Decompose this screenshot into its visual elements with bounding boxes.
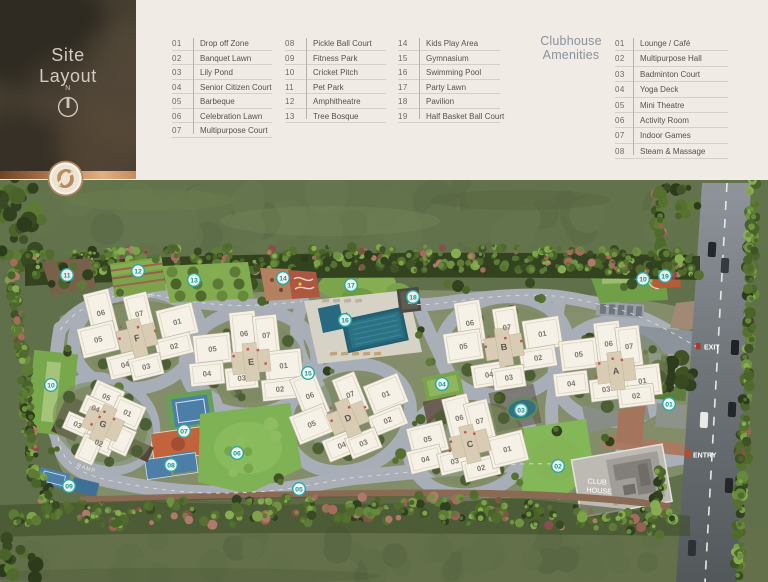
svg-text:04: 04 xyxy=(438,381,446,388)
svg-text:17: 17 xyxy=(347,282,355,289)
svg-text:02: 02 xyxy=(533,353,543,363)
svg-text:E: E xyxy=(247,357,254,368)
svg-text:06: 06 xyxy=(233,450,241,457)
svg-text:03: 03 xyxy=(517,407,525,414)
svg-text:19: 19 xyxy=(661,273,669,280)
svg-text:EXIT: EXIT xyxy=(704,345,720,352)
svg-text:07: 07 xyxy=(502,322,512,332)
svg-text:02: 02 xyxy=(554,463,562,470)
svg-text:05: 05 xyxy=(295,486,303,493)
svg-text:07: 07 xyxy=(180,428,188,435)
svg-text:12: 12 xyxy=(134,268,142,275)
svg-text:02: 02 xyxy=(275,384,284,394)
svg-text:14: 14 xyxy=(279,275,287,282)
svg-text:06: 06 xyxy=(239,329,248,339)
svg-text:HOUSE: HOUSE xyxy=(586,485,612,496)
svg-text:10: 10 xyxy=(47,382,55,389)
svg-text:03: 03 xyxy=(237,373,246,383)
svg-text:08: 08 xyxy=(167,462,175,469)
svg-text:18: 18 xyxy=(409,294,417,301)
svg-text:06: 06 xyxy=(465,318,475,328)
svg-text:ENTRY: ENTRY xyxy=(693,453,717,460)
svg-text:13: 13 xyxy=(190,277,198,284)
svg-text:07: 07 xyxy=(624,341,633,351)
svg-text:02: 02 xyxy=(631,391,640,401)
svg-text:03: 03 xyxy=(601,384,610,394)
svg-text:11: 11 xyxy=(63,272,70,279)
svg-text:09: 09 xyxy=(65,483,73,490)
svg-text:16: 16 xyxy=(341,317,349,324)
svg-text:01: 01 xyxy=(665,401,673,408)
svg-text:06: 06 xyxy=(604,339,613,349)
svg-text:10: 10 xyxy=(639,276,647,283)
svg-text:03: 03 xyxy=(504,373,514,383)
svg-text:15: 15 xyxy=(304,370,312,377)
svg-text:07: 07 xyxy=(262,330,271,340)
